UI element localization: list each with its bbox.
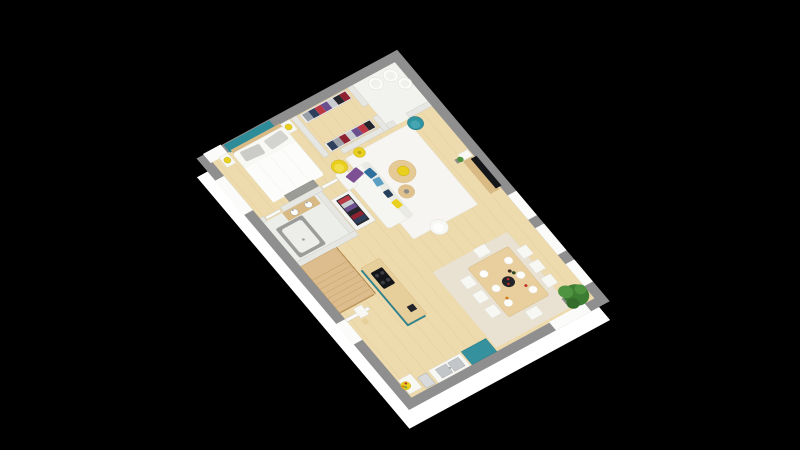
- floorplan-canvas: [0, 0, 800, 450]
